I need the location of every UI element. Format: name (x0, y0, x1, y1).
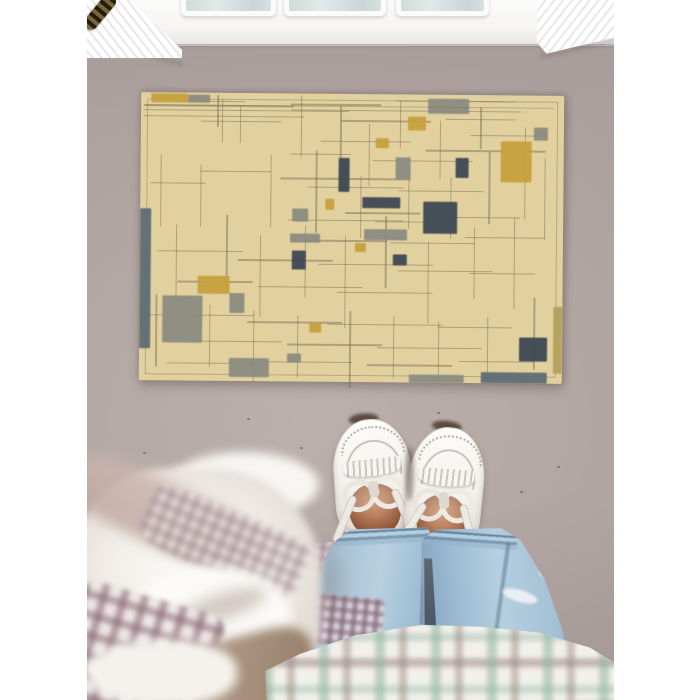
rug-block-m (309, 323, 321, 333)
rug-block-k (553, 307, 563, 374)
rug-grid-line (480, 107, 482, 149)
blanket-white-bottom (87, 640, 237, 700)
rug-grid-line (437, 327, 512, 329)
rug-block-g (162, 295, 202, 342)
rug-grid-line (201, 171, 271, 173)
rug-block-g (290, 233, 320, 242)
rug-block-n (519, 337, 547, 361)
rug-grid-line (258, 286, 363, 288)
rug-grid-line (209, 305, 211, 367)
door-pane-frame (396, 0, 489, 16)
rug-block-n (393, 254, 407, 265)
rug-block-n (423, 202, 457, 234)
rug-block-m (376, 138, 389, 148)
area-rug (139, 92, 564, 384)
photo-canvas: Top-down photo: person wearing white lea… (0, 0, 700, 700)
rug-block-m (408, 116, 426, 130)
door-pane-frame (284, 0, 386, 16)
rug-block-s (481, 372, 547, 384)
rug-block-g (287, 353, 301, 362)
rug-block-n (338, 158, 349, 192)
rug-block-m (355, 243, 366, 252)
lace-bow (339, 466, 407, 512)
rug-grid-line (318, 264, 433, 266)
rug-block-g (409, 375, 464, 383)
rug-grid-line (238, 259, 333, 262)
rug-grid-line (473, 227, 475, 299)
rug-block-g (188, 95, 210, 103)
rug-grid-line (488, 152, 491, 224)
rug-grid-line (427, 242, 429, 324)
rug-grid-line (200, 165, 202, 227)
rug-grid-line (513, 217, 515, 309)
rug-block-g (229, 358, 269, 377)
floor-speck (520, 491, 523, 493)
rug-grid-line (291, 103, 381, 106)
rug-grid-line (160, 154, 162, 226)
rug-block-m (500, 141, 531, 182)
rug-grid-line (390, 242, 475, 244)
door-glass-pane (289, 0, 381, 11)
floor-speck (437, 412, 440, 414)
rug-grid-line (291, 109, 521, 112)
rug-grid-line (222, 99, 224, 143)
rug-grid-line (150, 182, 205, 184)
rug-grid-line (340, 106, 342, 158)
rug-grid-line (301, 96, 303, 158)
rug-block-g (428, 99, 469, 114)
rug-block-m (325, 199, 334, 210)
rug-grid-line (240, 105, 242, 143)
rug-block-g (364, 229, 407, 240)
rug-grid-line (287, 343, 382, 346)
rug-grid-line (267, 361, 352, 363)
photo (87, 0, 614, 700)
door-glass-pane (186, 0, 271, 11)
rug-grid-line (487, 317, 489, 374)
rug-block-g (396, 157, 411, 179)
floor-speck (247, 418, 250, 420)
rug-grid-line (440, 121, 442, 179)
rug-block-g (229, 293, 244, 313)
rug-block-m (151, 93, 188, 102)
jean-cuff (423, 530, 518, 551)
rug-grid-line (158, 250, 243, 252)
rug-block-s (139, 208, 151, 348)
rug-grid-line (144, 104, 294, 107)
rug-grid-line (259, 235, 261, 317)
rug-grid-line (393, 316, 395, 378)
rug-grid-line (470, 273, 535, 275)
distressed-rip (501, 585, 539, 606)
rug-grid-line (465, 237, 545, 239)
floor-speck (557, 466, 560, 468)
between-shoes-shadow (405, 447, 414, 501)
rug-block-n (362, 197, 400, 208)
rug-grid-line (385, 216, 388, 288)
rug-grid-line (270, 155, 272, 227)
rug-block-g (534, 128, 548, 141)
rug-grid-line (368, 124, 370, 186)
rug-grid-line (349, 311, 352, 388)
lace-bow (410, 475, 478, 525)
left-white-margin (0, 0, 87, 700)
rug-grid-line (338, 292, 433, 294)
rug-block-n (292, 250, 306, 269)
rug-grid-line (308, 187, 403, 189)
rug-block-m (198, 276, 230, 294)
door-glass-pane (401, 0, 484, 11)
rug-block-n (456, 158, 469, 178)
right-white-margin (614, 0, 700, 700)
rug-grid-line (175, 224, 177, 306)
rug-grid-line (217, 95, 219, 127)
rug-grid-line (297, 316, 299, 378)
rug-block-g (292, 208, 308, 221)
rug-grid-line (155, 294, 158, 366)
rug-grid-line (344, 236, 346, 328)
door-pane-frame (181, 0, 276, 16)
rug-grid-line (544, 158, 546, 240)
rug-grid-line (321, 141, 411, 143)
rug-grid-line (144, 115, 304, 118)
rug-grid-line (398, 190, 483, 192)
bow-knot (439, 492, 450, 509)
